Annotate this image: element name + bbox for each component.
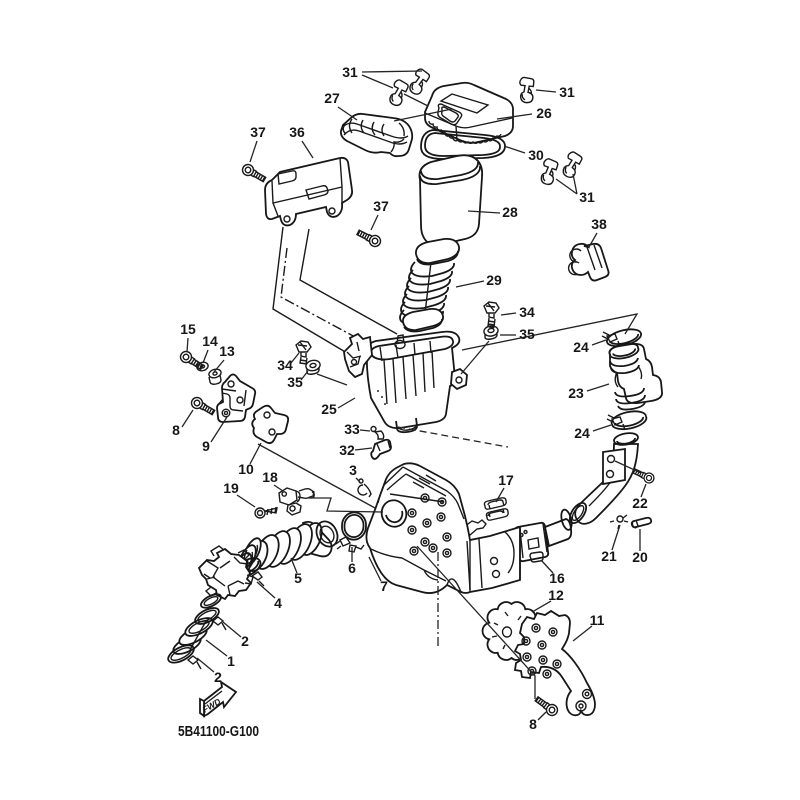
svg-text:24: 24 xyxy=(573,339,589,355)
svg-text:33: 33 xyxy=(344,421,360,437)
svg-text:21: 21 xyxy=(601,548,617,564)
svg-text:24: 24 xyxy=(574,425,590,441)
svg-text:32: 32 xyxy=(339,442,355,458)
svg-text:19: 19 xyxy=(223,480,239,496)
svg-text:31: 31 xyxy=(342,64,358,80)
svg-text:8: 8 xyxy=(529,716,537,732)
svg-text:3: 3 xyxy=(349,462,357,478)
svg-text:14: 14 xyxy=(202,333,218,349)
svg-text:15: 15 xyxy=(180,321,196,337)
svg-text:17: 17 xyxy=(498,472,514,488)
svg-text:37: 37 xyxy=(250,124,266,140)
svg-text:37: 37 xyxy=(373,198,389,214)
svg-text:22: 22 xyxy=(632,495,648,511)
svg-text:2: 2 xyxy=(214,669,222,685)
svg-text:38: 38 xyxy=(591,216,607,232)
svg-text:9: 9 xyxy=(202,438,210,454)
svg-text:5: 5 xyxy=(294,570,302,586)
svg-text:36: 36 xyxy=(289,124,305,140)
svg-text:29: 29 xyxy=(486,272,502,288)
svg-text:8: 8 xyxy=(172,422,180,438)
svg-text:2: 2 xyxy=(241,633,249,649)
svg-text:25: 25 xyxy=(321,401,337,417)
svg-text:34: 34 xyxy=(519,304,535,320)
svg-text:31: 31 xyxy=(579,189,595,205)
svg-text:34: 34 xyxy=(277,357,293,373)
svg-text:26: 26 xyxy=(536,105,552,121)
svg-text:10: 10 xyxy=(238,461,254,477)
svg-text:1: 1 xyxy=(227,653,235,669)
svg-text:6: 6 xyxy=(348,560,356,576)
svg-text:31: 31 xyxy=(559,84,575,100)
svg-text:11: 11 xyxy=(590,612,605,628)
svg-text:23: 23 xyxy=(568,385,584,401)
svg-text:20: 20 xyxy=(632,549,648,565)
svg-text:30: 30 xyxy=(528,147,544,163)
svg-text:35: 35 xyxy=(287,374,303,390)
svg-text:5B41100-G100: 5B41100-G100 xyxy=(178,724,259,740)
svg-text:35: 35 xyxy=(519,326,535,342)
svg-text:27: 27 xyxy=(324,90,340,106)
svg-text:18: 18 xyxy=(262,469,278,485)
svg-text:13: 13 xyxy=(219,343,235,359)
svg-text:28: 28 xyxy=(502,204,518,220)
